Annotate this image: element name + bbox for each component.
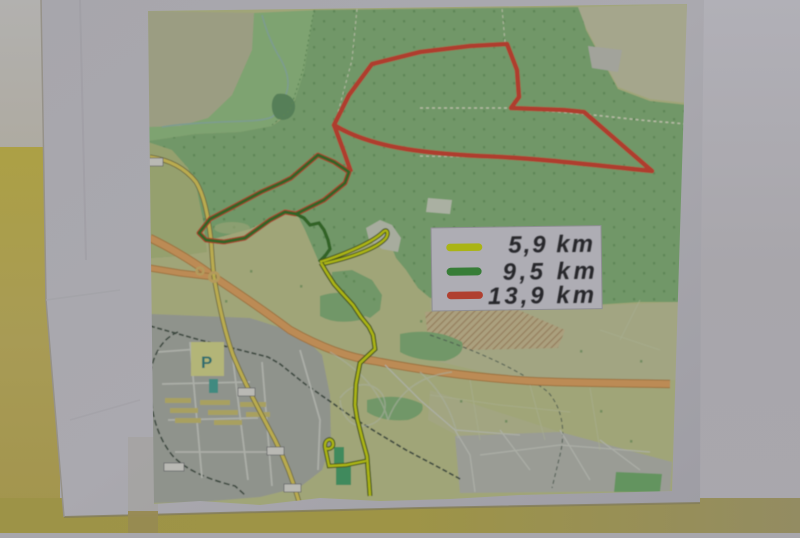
svg-text:P: P [201, 353, 212, 372]
svg-text:5,9 km: 5,9 km [508, 231, 595, 259]
svg-text:13,9 km: 13,9 km [488, 282, 597, 311]
